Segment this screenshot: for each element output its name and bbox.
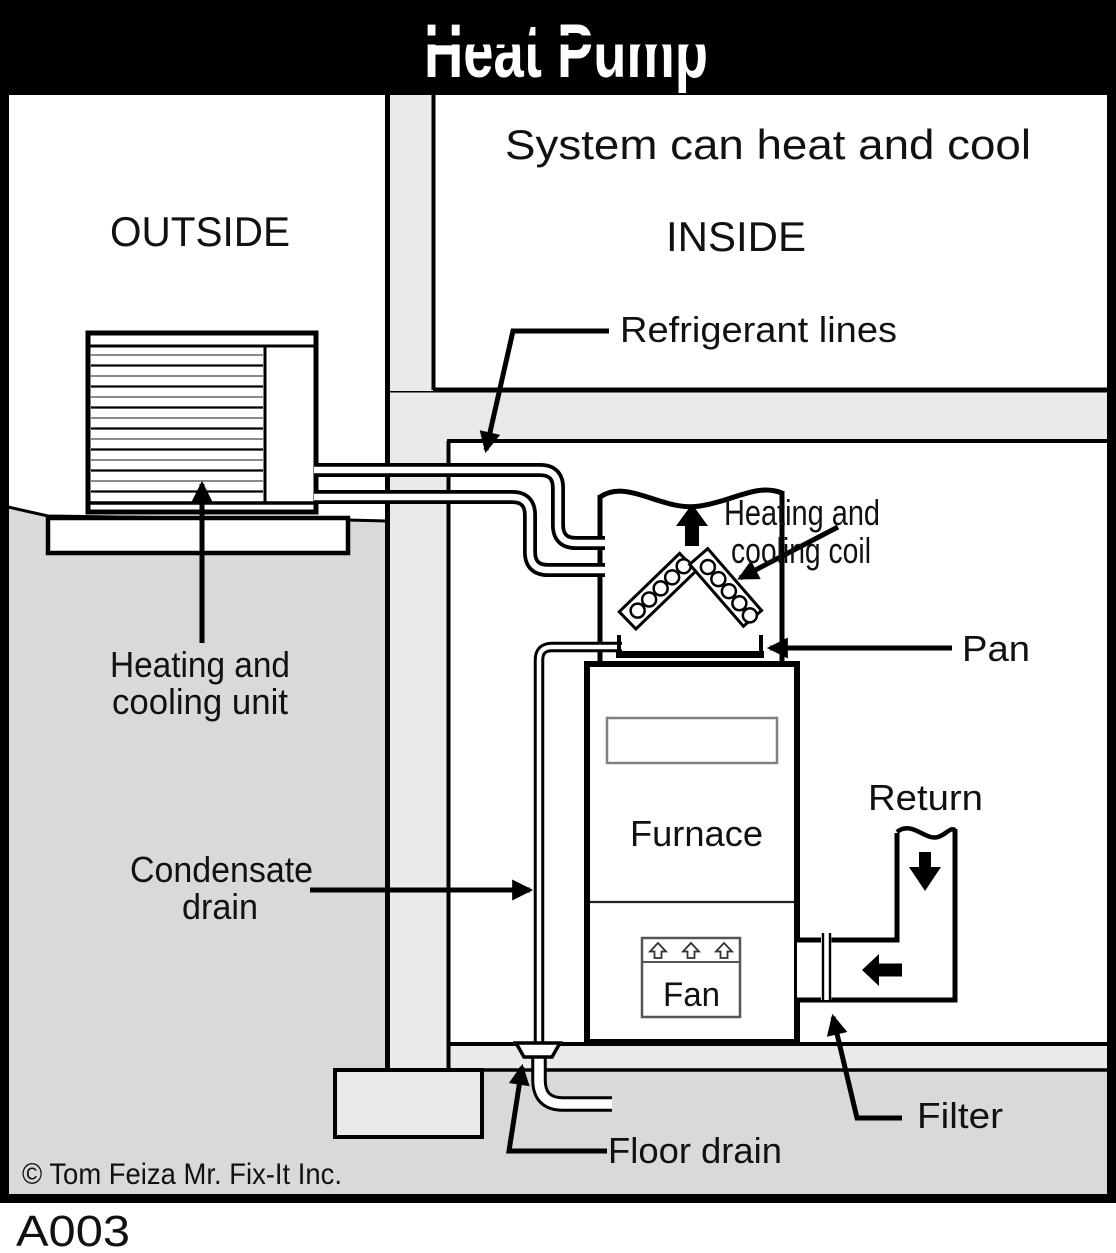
floor-drain-label: Floor drain <box>608 1130 782 1171</box>
return-label: Return <box>868 777 983 818</box>
diagram-canvas: Heat Pump <box>0 0 1116 1253</box>
unit-label-line2: cooling unit <box>112 681 288 722</box>
condensate-label-line1: Condensate <box>130 849 313 890</box>
filter-label: Filter <box>917 1095 1003 1136</box>
unit-pad <box>48 518 348 553</box>
copyright: © Tom Feiza Mr. Fix-It Inc. <box>22 1158 342 1191</box>
coil-label-line1: Heating and <box>724 492 880 533</box>
furnace-label: Furnace <box>630 813 763 854</box>
pan-label: Pan <box>962 628 1030 669</box>
filter-lines <box>821 931 832 1001</box>
heat-pump-diagram: Heat Pump <box>0 0 1116 1253</box>
unit-label-line1: Heating and <box>110 644 290 685</box>
wall-footing <box>335 1070 482 1137</box>
title-bar: Heat Pump <box>0 0 1116 95</box>
outside-label: OUTSIDE <box>110 208 290 255</box>
refrigerant-lines-label: Refrigerant lines <box>620 309 897 350</box>
page-title: Heat Pump <box>424 9 708 94</box>
fan-label: Fan <box>663 976 720 1014</box>
coil-label-line2: cooling coil <box>731 530 871 571</box>
floor-drain-funnel <box>516 1043 560 1057</box>
inside-label: INSIDE <box>666 213 806 260</box>
subtitle: System can heat and cool <box>505 121 1031 168</box>
condensate-label-line2: drain <box>182 886 258 927</box>
diagram-code: A003 <box>16 1207 130 1253</box>
furnace-panel <box>607 718 777 763</box>
